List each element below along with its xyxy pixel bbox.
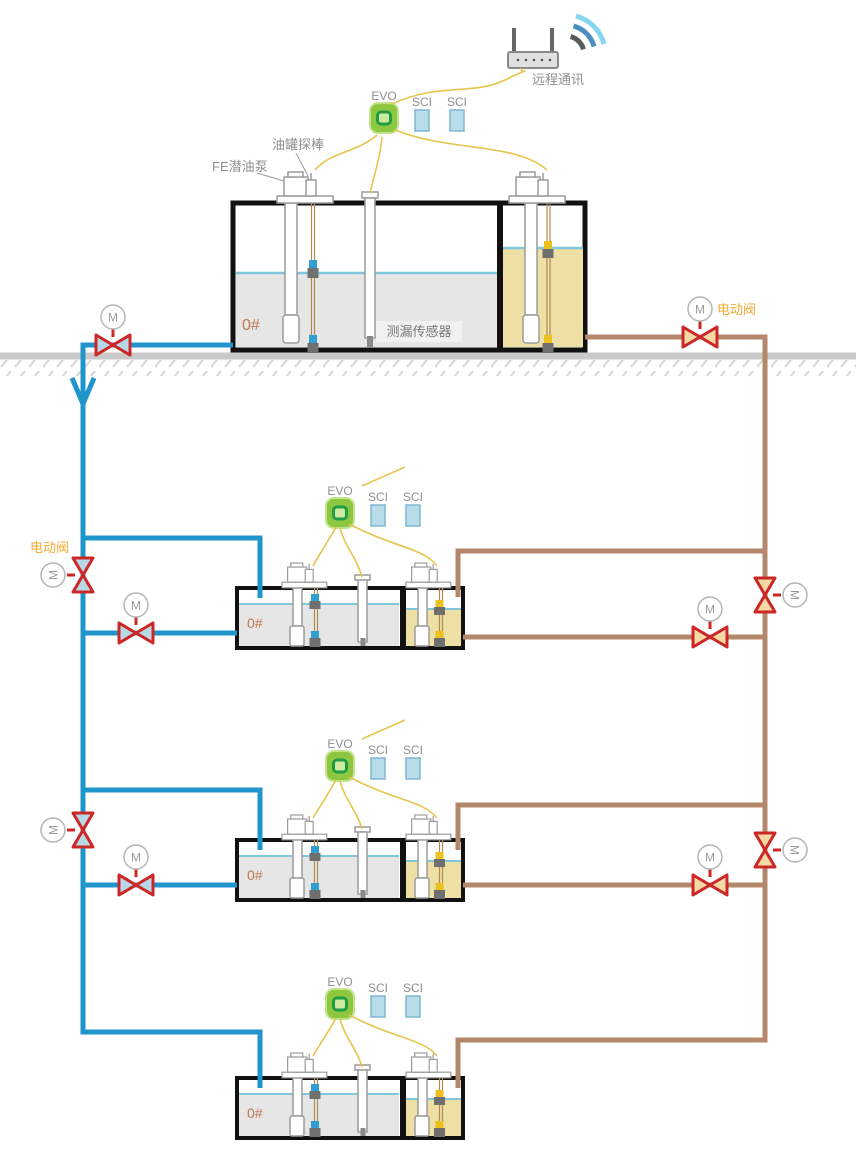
leak-sensor-tube [365, 198, 375, 338]
probe-wire [313, 1018, 336, 1056]
electric-valve-label: 电动阀 [30, 540, 69, 555]
return-fill-branch-2 [458, 551, 765, 597]
probe-float [309, 335, 317, 343]
tank-monitoring-diagram: EVO SCI SCI 0# [0, 0, 856, 1154]
wifi-arc-inner-icon [571, 37, 584, 50]
supply-piping-blue [72, 345, 260, 1088]
storage-tank-1: 0# 测漏传感器 [233, 172, 585, 352]
ground-hatching [0, 360, 856, 376]
motor-label: M [108, 311, 118, 325]
supply-fill-branch-3 [83, 790, 260, 850]
return-fill-branch-3 [458, 805, 765, 850]
evo-cluster-2 [326, 484, 423, 528]
probe-base [543, 343, 554, 352]
remote-comm-gateway: 远程通讯 [508, 16, 604, 87]
leak-sensor-wire [340, 1019, 362, 1067]
pump-column [525, 203, 537, 315]
fuel-grade-label: 0# [242, 317, 260, 334]
probe-float [309, 260, 317, 268]
motor-label: M [47, 825, 61, 835]
return-main-pipe [458, 337, 765, 1088]
evo-cluster-3 [326, 737, 423, 781]
leak-sensor-tip [367, 336, 373, 348]
motor-label: M [788, 590, 802, 600]
storage-tank-2 [237, 563, 463, 648]
storage-tank-4 [237, 1053, 463, 1138]
probe-float-collar [308, 268, 319, 278]
motor-label: M [705, 603, 715, 617]
fe-pump-label: FE潜油泵 [212, 159, 268, 174]
electric-valve-label: 电动阀 [717, 302, 756, 317]
supply-main-pipe [83, 345, 260, 1088]
storage-tank-3 [237, 815, 463, 900]
pump-column [285, 203, 297, 315]
probe-wire [395, 130, 547, 170]
submersible-pump [283, 315, 299, 343]
probe-wire [349, 1015, 437, 1056]
leak-sensor-wire [370, 137, 382, 193]
probe-wire [313, 780, 336, 818]
motor-label: M [47, 570, 61, 580]
leak-sensor-label: 测漏传感器 [386, 324, 451, 339]
schematic-canvas: EVO SCI SCI 0# [0, 0, 856, 1154]
probe-float [544, 335, 552, 343]
leader-line [257, 173, 284, 181]
submersible-pump [523, 315, 539, 343]
motor-label: M [695, 303, 705, 317]
comm-wire [362, 720, 405, 739]
wifi-arc-middle-icon [574, 26, 595, 47]
motor-label: M [131, 599, 141, 613]
probe-wire [315, 135, 377, 170]
probe-float [544, 241, 552, 249]
evo-cluster-1 [370, 89, 467, 133]
supply-fill-branch-2 [83, 538, 260, 598]
tank-probe-label: 油罐探棒 [272, 137, 324, 152]
motor-label: M [788, 845, 802, 855]
probe-wire [313, 527, 336, 566]
probe-wire [349, 524, 437, 566]
return-piping-brown [458, 337, 765, 1088]
gasoline-liquid [503, 248, 583, 347]
motor-label: M [705, 851, 715, 865]
tank-divider [497, 205, 503, 348]
remote-comm-label: 远程通讯 [532, 72, 584, 87]
leak-sensor-wire [340, 528, 362, 577]
probe-base [308, 343, 319, 352]
callout-labels: 油罐探棒 FE潜油泵 [212, 137, 324, 181]
ground [0, 356, 856, 376]
probe-wire [349, 777, 437, 818]
probe-float-collar [543, 249, 554, 258]
evo-cluster-4 [326, 975, 423, 1019]
motor-label: M [131, 851, 141, 865]
leak-sensor-wire [340, 781, 362, 829]
comm-wire [362, 467, 405, 486]
